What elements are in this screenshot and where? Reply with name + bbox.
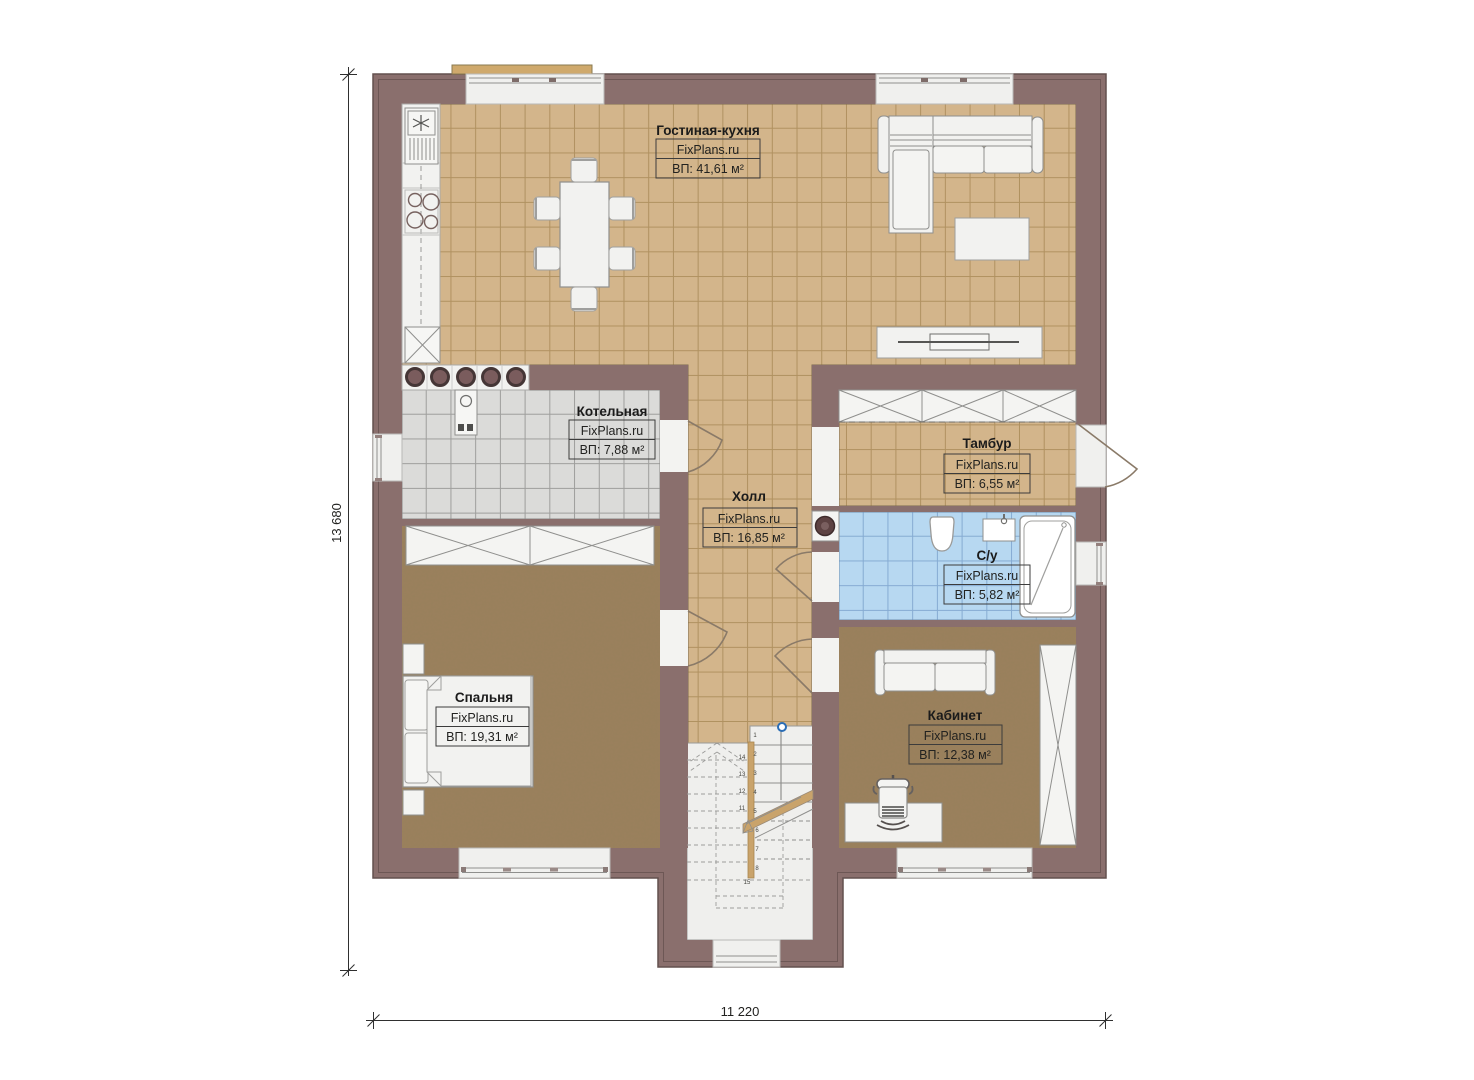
svg-text:FixPlans.ru: FixPlans.ru [451,711,514,725]
svg-text:15: 15 [744,880,751,886]
svg-text:12: 12 [739,789,746,795]
svg-text:FixPlans.ru: FixPlans.ru [956,569,1019,583]
svg-text:FixPlans.ru: FixPlans.ru [581,424,644,438]
svg-text:FixPlans.ru: FixPlans.ru [956,458,1019,472]
svg-text:14: 14 [739,755,746,761]
svg-text:FixPlans.ru: FixPlans.ru [677,143,740,157]
svg-text:Кабинет: Кабинет [928,708,983,723]
svg-text:FixPlans.ru: FixPlans.ru [924,729,987,743]
svg-text:ВП: 19,31 м²: ВП: 19,31 м² [446,730,518,744]
svg-text:С/у: С/у [976,548,998,563]
svg-text:ВП: 12,38 м²: ВП: 12,38 м² [919,748,991,762]
svg-text:Спальня: Спальня [455,690,513,705]
svg-text:Холл: Холл [732,489,766,504]
svg-text:ВП: 5,82 м²: ВП: 5,82 м² [955,588,1020,602]
svg-text:11 220: 11 220 [721,1004,760,1019]
svg-text:ВП: 16,85 м²: ВП: 16,85 м² [713,531,785,545]
svg-text:Тамбур: Тамбур [963,436,1012,451]
svg-text:13 680: 13 680 [329,503,344,543]
svg-text:13: 13 [739,772,746,778]
svg-text:Котельная: Котельная [577,404,648,419]
svg-text:FixPlans.ru: FixPlans.ru [718,512,781,526]
svg-text:ВП: 7,88 м²: ВП: 7,88 м² [580,443,645,457]
svg-text:ВП: 6,55 м²: ВП: 6,55 м² [955,477,1020,491]
svg-text:11: 11 [739,806,746,812]
svg-text:Гостиная-кухня: Гостиная-кухня [656,123,759,138]
svg-text:ВП: 41,61 м²: ВП: 41,61 м² [672,162,744,176]
